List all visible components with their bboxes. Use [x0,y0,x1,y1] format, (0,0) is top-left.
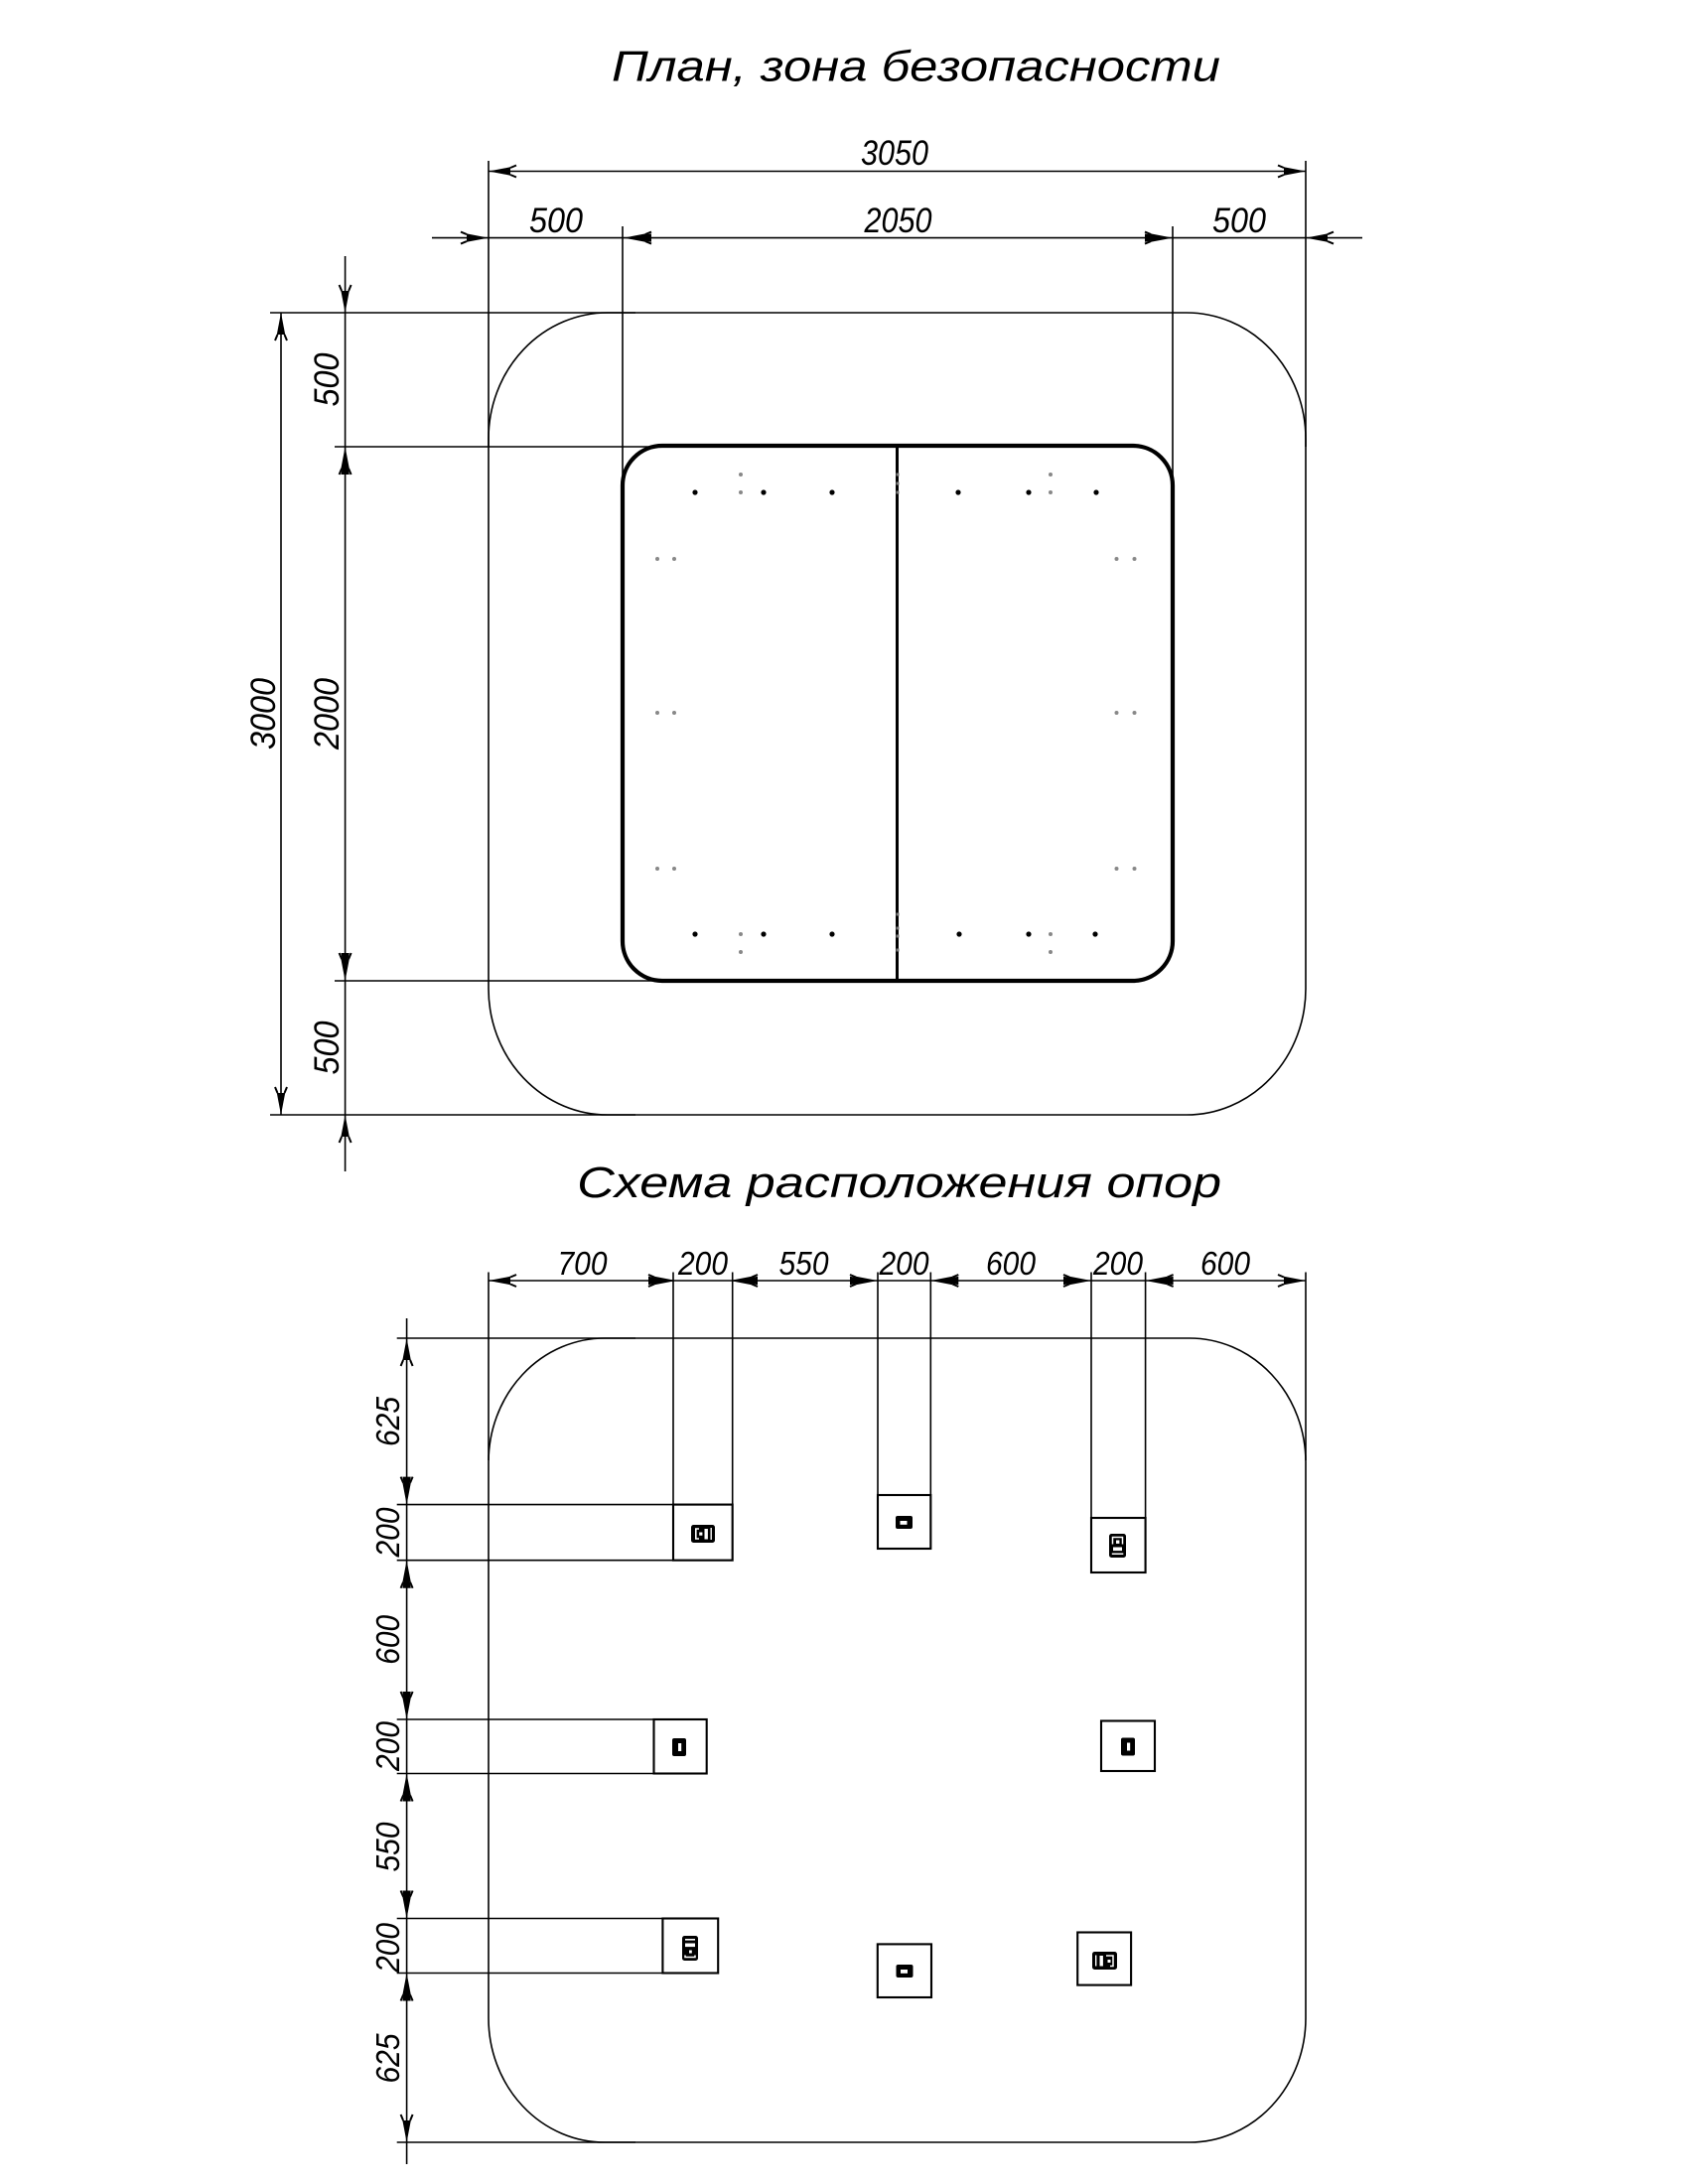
svg-text:200: 200 [369,1507,406,1558]
svg-text:500: 500 [308,352,347,406]
svg-text:600: 600 [1200,1245,1251,1282]
svg-text:Схема расположения опор: Схема расположения опор [577,1159,1221,1207]
svg-text:550: 550 [779,1245,830,1282]
svg-text:625: 625 [369,1396,406,1446]
svg-text:200: 200 [677,1245,728,1282]
svg-text:500: 500 [529,202,583,240]
svg-text:625: 625 [369,2033,406,2084]
svg-text:600: 600 [369,1614,406,1665]
svg-text:2050: 2050 [864,202,932,240]
svg-text:550: 550 [369,1822,406,1872]
svg-text:200: 200 [369,1720,406,1771]
svg-text:500: 500 [308,1021,347,1074]
svg-text:200: 200 [879,1245,929,1282]
svg-text:3050: 3050 [861,134,928,173]
svg-text:3000: 3000 [244,678,283,750]
svg-text:600: 600 [986,1245,1037,1282]
svg-text:500: 500 [1212,202,1266,240]
svg-text:700: 700 [558,1245,609,1282]
svg-text:200: 200 [1092,1245,1143,1282]
svg-text:План, зона безопасности: План, зона безопасности [612,43,1220,91]
svg-text:200: 200 [369,1922,406,1973]
svg-text:2000: 2000 [308,678,347,751]
